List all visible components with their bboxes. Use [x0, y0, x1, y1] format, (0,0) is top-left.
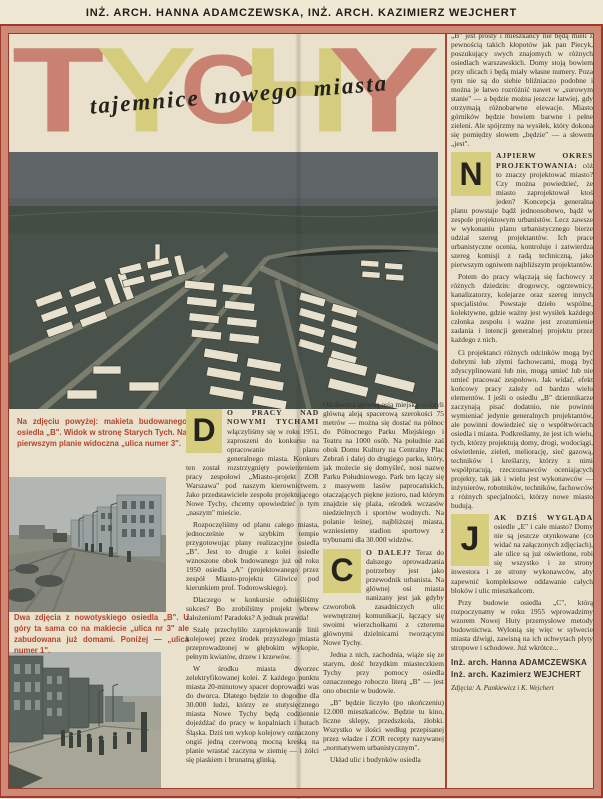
section-lead: O DALEJ?	[366, 548, 412, 557]
paragraph: Jedna z nich, zachodnia, wiąże się ze st…	[323, 650, 444, 695]
dropcap-letter: J	[461, 519, 480, 560]
street-photos-caption: Dwa zdjęcia z nowotyskiego osiedla „B". …	[14, 613, 189, 657]
street-photo-bottom	[9, 652, 161, 789]
magazine-page: INŻ. ARCH. HANNA ADAMCZEWSKA, INŻ. ARCH.…	[0, 0, 603, 799]
column-middle-right: Od dworca główną osią miejską — czyli gł…	[323, 400, 444, 786]
title-letter-t: T	[12, 30, 104, 151]
paragraph: „B" będzie liczyło (po ukończeniu) 12.00…	[323, 698, 444, 752]
dropcap-letter: N	[459, 155, 482, 194]
paragraph: Potem do pracy włączają się fachowcy z r…	[451, 272, 593, 344]
photo-credit: Zdjęcia: A. Pankiewicz i K. Wejchert	[451, 684, 593, 693]
paragraph: Ci projektanci różnych odcinków mogą być…	[451, 348, 593, 511]
paragraph-dropcap-n: NAJPIERW OKRES PROJEKTOWANIA: cóż to zna…	[451, 151, 593, 269]
column-right: „B" jest prosty i mieszkańcy nie będą mi…	[451, 31, 593, 788]
street-photo-top	[9, 477, 166, 612]
dropcap-letter: D	[192, 411, 215, 450]
page-fold-shadow	[295, 26, 302, 799]
paragraph: Układ ulic i budynków osiedla	[323, 755, 444, 764]
dropcap-d: D	[186, 409, 222, 453]
model-photo-caption: Na zdjęciu powyżej: makieta budowanego o…	[17, 417, 187, 450]
author-signature-1: Inż. arch. Hanna ADAMCZEWSKA	[451, 658, 593, 668]
model-aerial-photo	[9, 152, 438, 409]
paragraph-dropcap-j: JAK DZIŚ WYGLĄDA osiedle „E" i całe mias…	[451, 513, 593, 595]
dropcap-j: J	[451, 514, 489, 566]
section-lead: AK DZIŚ WYGLĄDA	[494, 513, 593, 522]
dropcap-c: C	[323, 549, 361, 593]
paragraph: „B" jest prosty i mieszkańcy nie będą mi…	[451, 31, 593, 148]
paragraph-dropcap-c: CO DALEJ? Teraz do dalszego oprowadzania…	[323, 548, 444, 648]
dropcap-letter: C	[330, 551, 353, 590]
section-lead: O PRACY NAD NOWYMI TYCHAMI	[227, 408, 319, 426]
paragraph: Przy budowie osiedla „C", którą rozpoczy…	[451, 598, 593, 652]
column-divider-rule	[445, 30, 447, 790]
dropcap-n: N	[451, 152, 491, 196]
author-signature-2: Inż. arch. Kazimierz WEJCHERT	[451, 670, 593, 680]
paragraph: Od dworca główną osią miejską — czyli gł…	[323, 400, 444, 545]
